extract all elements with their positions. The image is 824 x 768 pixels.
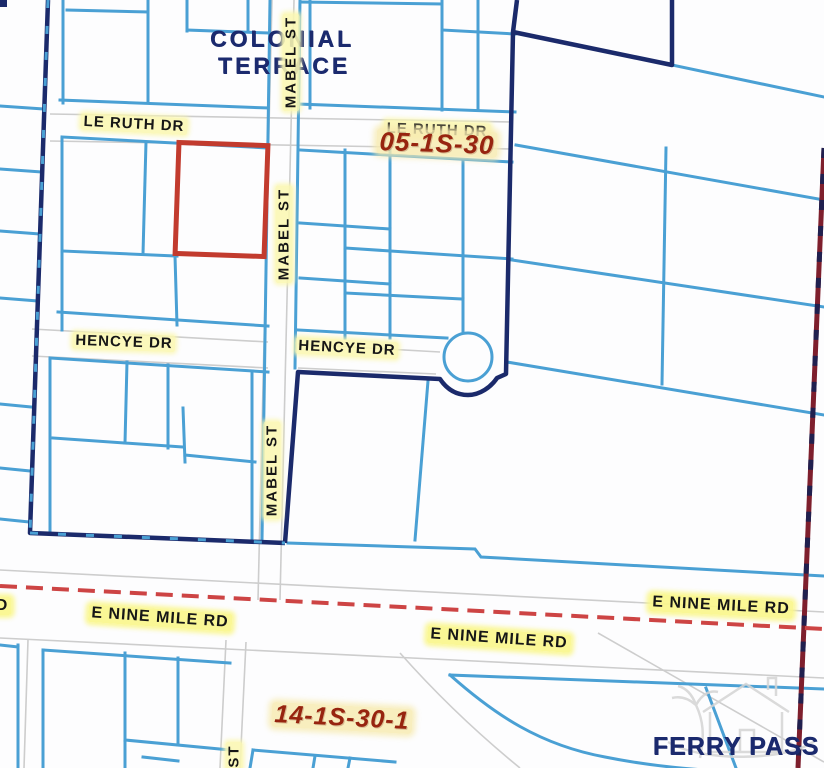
street-label-hencye-dr-west: HENCYE DR [72,332,176,353]
section-label-05-1s-30: 05-1S-30 [376,128,498,158]
street-label-nine-mile-cut: D [0,597,11,615]
street-label-mabel-st-top: MABEL ST [283,13,300,111]
section-line [798,148,824,768]
street-label-mabel-st-lower: MABEL ST [264,421,281,519]
highlighted-parcel[interactable] [175,142,268,256]
subdivision-boundary [0,0,672,543]
area-label-ferry-pass: FERRY PASS [653,735,820,760]
street-label-st-cut: ST [226,741,243,768]
street-label-mabel-st-middle: MABEL ST [276,185,293,283]
map-canvas[interactable]: COLONIAL TERRACE LE RUTH DR LE RUTH DR 0… [0,0,824,768]
